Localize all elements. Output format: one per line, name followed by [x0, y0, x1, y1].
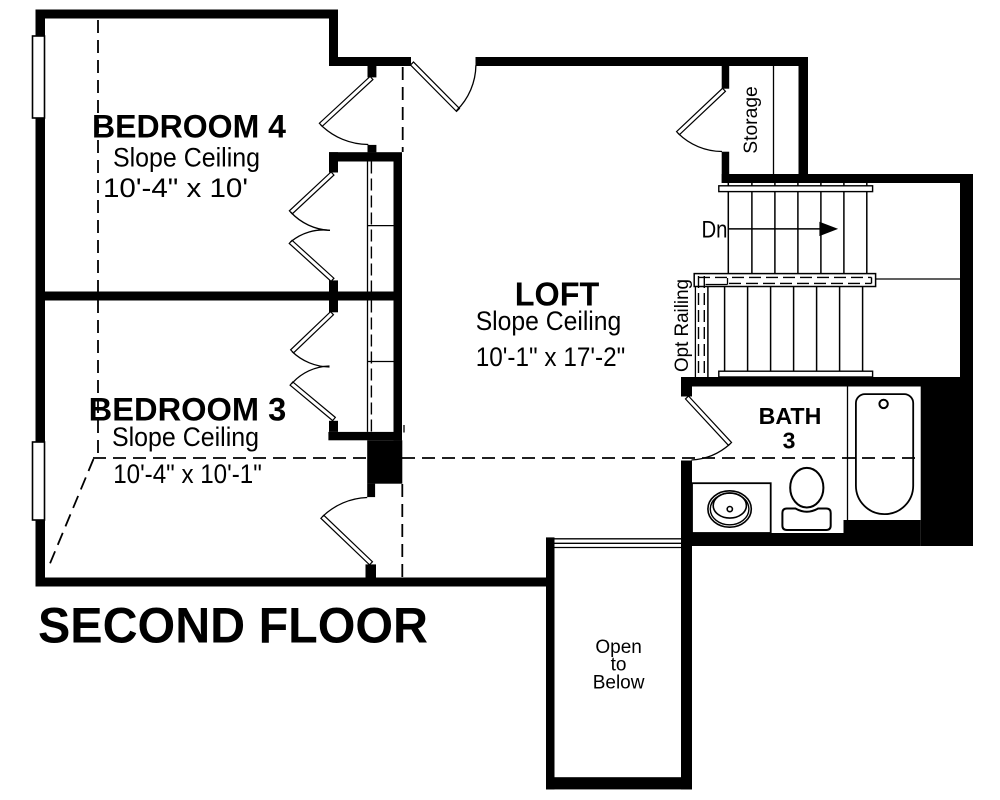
svg-text:Storage: Storage	[741, 86, 762, 154]
svg-text:10'-4" x 10'-1": 10'-4" x 10'-1"	[113, 459, 262, 489]
svg-text:SECOND FLOOR: SECOND FLOOR	[38, 598, 428, 654]
svg-text:Slope Ceiling: Slope Ceiling	[476, 306, 622, 336]
svg-text:Dn: Dn	[702, 217, 728, 244]
svg-text:10'-4" x 10': 10'-4" x 10'	[103, 173, 248, 203]
svg-text:3: 3	[783, 428, 796, 454]
svg-text:Below: Below	[593, 672, 645, 693]
svg-text:10'-1" x 17'-2": 10'-1" x 17'-2"	[476, 342, 626, 372]
svg-text:Opt Railing: Opt Railing	[672, 279, 693, 372]
svg-text:BEDROOM 4: BEDROOM 4	[92, 109, 286, 145]
svg-text:Slope Ceiling: Slope Ceiling	[112, 422, 259, 452]
svg-text:BATH: BATH	[759, 403, 822, 429]
svg-text:Slope Ceiling: Slope Ceiling	[113, 143, 260, 173]
